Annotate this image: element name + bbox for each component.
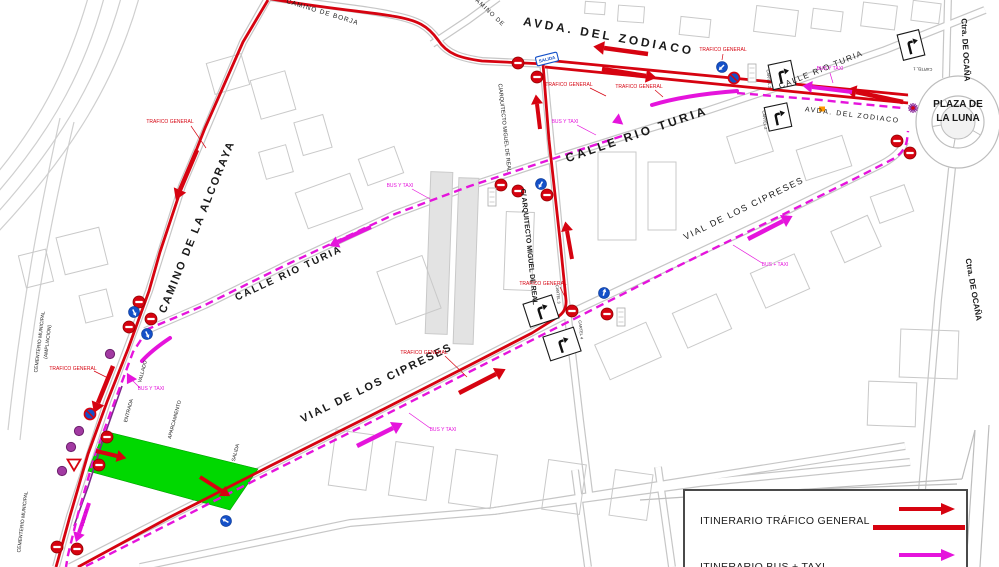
no-entry-sign-icon [51,541,63,553]
building [79,289,113,323]
building [18,249,53,288]
building [754,6,799,37]
annotation-leader [655,90,663,97]
bus-taxi-annotation: BUS Y TAXI [552,119,579,125]
no-entry-sign-icon [133,296,145,308]
building [259,145,294,180]
no-entry-sign-icon [904,147,916,159]
legend-bus-label: ITINERARIO BUS + TAXI [700,561,825,567]
trafico-general-annotation: TRAFICO GENERAL [545,82,592,88]
building [617,5,644,23]
annotation-leader [733,245,762,263]
annotation-leader [409,413,430,428]
annotation-leader [577,125,596,135]
street-name-label: SALIDA [231,443,242,462]
purple-marker-icon [57,466,66,475]
small-panel-sign [748,64,756,82]
no-entry-sign-icon [512,57,524,69]
building [861,2,898,30]
railway-curve [0,0,104,192]
route-arrow [142,338,170,361]
building [911,0,941,23]
building [648,162,676,230]
bus-taxi-annotation: BUS Y TAXI [387,183,414,189]
building [870,185,913,224]
no-entry-sign-icon [601,308,613,320]
annotation-leader [722,54,723,60]
annotation-leader [412,189,430,199]
street-name-label: AVDA. DEL ZODIACO [522,14,695,58]
no-parking-sign-icon [85,409,96,420]
street-name-label: CALLE RIO TURIA [234,244,345,304]
no-entry-sign-icon [531,71,543,83]
building [585,1,606,14]
purple-marker-icon [105,349,114,358]
trafico-general-annotation: TRAFICO GENERAL [615,84,662,90]
annotation-leader [590,88,606,96]
road-surface [922,168,952,490]
building [679,16,711,37]
no-entry-sign-icon [145,313,157,325]
building [425,172,453,335]
cartel-number-label: CARTEL 1 [913,66,933,72]
map-canvas: CARTEL 1CARTEL 2CARTEL 2CARTEL 3CARTEL 4… [0,0,999,567]
street-name-label: LA LUNA [936,113,980,124]
road-surface [946,0,948,78]
small-panel-sign [488,188,496,206]
building [294,115,332,156]
traffic-itinerary-map: CARTEL 1CARTEL 2CARTEL 2CARTEL 3CARTEL 4… [0,0,999,567]
bus-taxi-annotation: BUS Y TAXI [138,386,165,392]
annotation-leader [830,73,833,83]
parking-area [88,431,258,510]
building [56,227,108,275]
bus-taxi-annotation: BUS Y TAXI [430,427,457,433]
street-name-label: CEMENTERIO MUNICIPAL [16,491,29,553]
street-name-label: APARCAMIENTO [167,400,183,440]
street-name-label: Ctra. DE OCAÑA [959,18,971,82]
building [598,152,636,240]
street-name-label: VALLADO [137,360,149,384]
trafico-general-annotation: TRAFICO GENERAL [519,281,566,287]
legend-general-arrow-icon [897,502,955,516]
no-entry-sign-icon [123,321,135,333]
trafico-general-annotation: TRAFICO GENERAL [699,47,746,53]
legend-general-label: ITINERARIO TRÁFICO GENERAL [700,515,870,527]
building [811,8,843,32]
arrow-head [593,41,605,54]
cartel-number-label: CARTEL 4 [578,320,585,340]
street-name-label: Ctra. DE OCAÑA [964,258,984,322]
street-name-label: VUELTA [80,507,91,527]
building [867,381,917,427]
purple-marker-icon [74,426,83,435]
street-name-label: C/ARQUITECTO MIGUEL DE REAL [496,83,511,172]
no-entry-sign-icon [71,543,83,555]
arrow-head [531,94,543,104]
building [453,178,479,345]
building [358,146,403,185]
trafico-general-annotation: TRAFICO GENERAL [400,350,447,356]
no-parking-sign-icon [729,73,740,84]
building [448,449,497,508]
route-arrow [537,104,540,129]
mandatory-direction-sign-icon [714,59,730,75]
trafico-general-annotation: TRAFICO GENERAL [49,366,96,372]
no-entry-sign-icon [93,459,105,471]
small-panel-sign [617,308,625,326]
parking-polygon [88,431,258,510]
route-arrow [180,150,197,190]
trafico-general-route [545,67,908,103]
railway-curve [0,0,88,172]
building [595,322,662,379]
building [672,294,731,348]
legend-general-line [873,525,965,530]
mandatory-direction-sign-icon [218,513,233,528]
building [295,173,362,229]
no-entry-sign-icon [566,305,578,317]
street-name-label: PLAZA DE [933,99,983,110]
bus-taxi-annotation: BUS + TAXI [762,262,789,268]
legend-bus-arrow-icon [897,548,955,562]
arrow-head [127,373,137,384]
street-name-label: ENTRADA [123,398,135,423]
route-arrow [459,374,496,393]
yield-sign-icon [68,460,81,471]
street-name-label: AVDA. DEL ZODIACO [805,106,900,125]
building [388,442,433,501]
street-name-label: CALLE RIO TURIA [564,103,710,165]
no-entry-sign-icon [891,135,903,147]
building [727,125,774,164]
building [250,71,296,119]
no-entry-sign-icon [541,189,553,201]
purple-marker-icon [66,442,75,451]
arrow-head [612,113,623,124]
bus-taxi-annotation: BUS Y TAXI [817,66,844,72]
cartel-number-label: CARTEL 2 [761,110,768,130]
arrow-head [561,222,573,233]
no-entry-sign-icon [101,431,113,443]
no-entry-sign-icon [495,179,507,191]
route-arrow [357,428,393,446]
legend-box: ITINERARIO TRÁFICO GENERAL ITINERARIO BU… [683,489,968,567]
direction-panel-sign: CARTEL 2 [759,103,792,132]
route-arrow [567,231,572,259]
building [831,215,881,262]
building [796,135,852,180]
trafico-general-annotation: TRAFICO GENERAL [146,119,193,125]
frame-line [980,425,989,567]
street-name-label: C/ ARQUITECTO MIGUEL DE REAL [519,189,538,306]
